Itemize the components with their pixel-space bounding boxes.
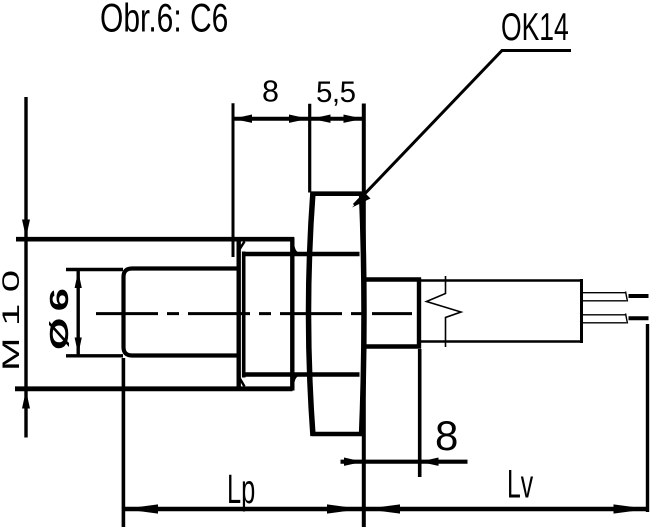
svg-text:OK14: OK14 bbox=[501, 6, 569, 49]
svg-text:M10: M10 bbox=[0, 258, 25, 371]
svg-text:8: 8 bbox=[262, 75, 279, 109]
svg-text:Obr.6: C6: Obr.6: C6 bbox=[100, 0, 228, 41]
svg-text:Lv: Lv bbox=[507, 463, 533, 507]
svg-text:8: 8 bbox=[435, 412, 458, 459]
svg-text:Lp: Lp bbox=[227, 467, 255, 513]
svg-text:Ø6: Ø6 bbox=[46, 282, 74, 350]
svg-text:5,5: 5,5 bbox=[316, 76, 356, 109]
